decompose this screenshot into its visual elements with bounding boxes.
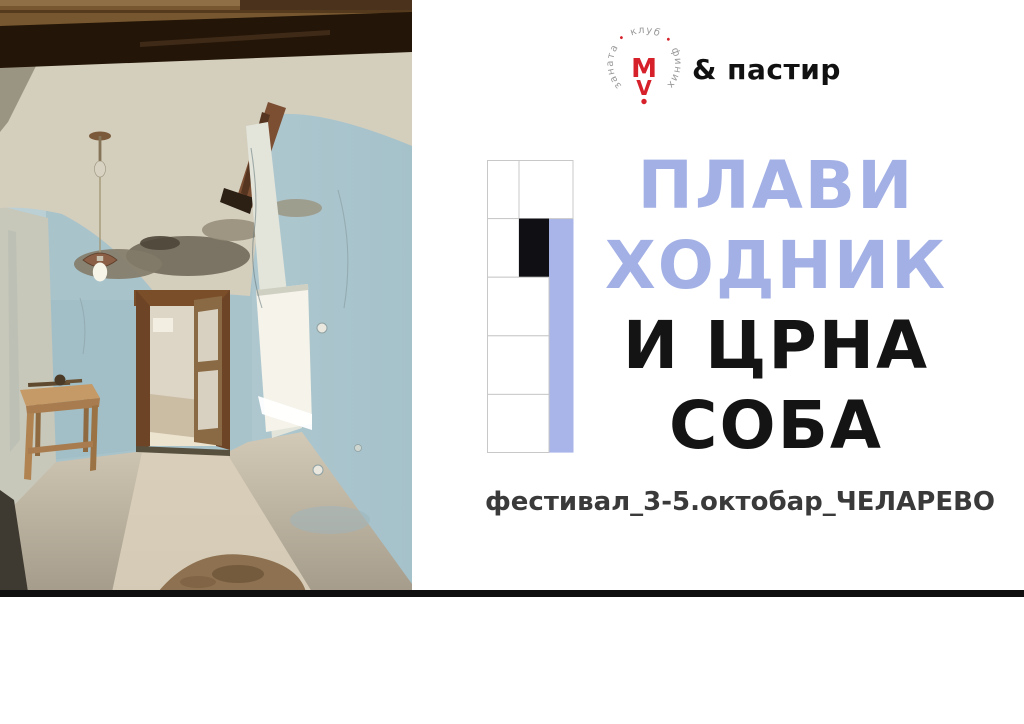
grid-graphic	[487, 160, 574, 453]
club-finih-zanata-logo: заната•клуб•финих M V	[599, 21, 689, 111]
divider-rule	[0, 590, 1024, 597]
monogram-v: V	[636, 76, 652, 100]
title-line-1: ПЛАВИ	[566, 146, 986, 226]
poster-title: ПЛАВИ ХОДНИК И ЦРНА СОБА	[566, 146, 986, 466]
title-line-3: И ЦРНА	[566, 306, 986, 386]
red-dot: •	[616, 32, 628, 45]
arc-word-right: финих	[664, 46, 683, 91]
title-line-2: ХОДНИК	[566, 226, 986, 306]
sponsor-footer: Schweizerische Eidgenossenschaft Confédé…	[0, 597, 1024, 724]
red-dot: •	[662, 34, 675, 47]
wall-outlet	[317, 323, 327, 333]
arc-word-top: клуб	[629, 25, 663, 40]
light-bulb	[93, 263, 107, 282]
title-line-4: СОБА	[566, 386, 986, 466]
room-photo	[0, 0, 412, 592]
arc-word-left: заната	[605, 42, 624, 91]
festival-poster: заната•клуб•финих M V & пастир ПЛАВИ ХОД…	[0, 0, 1024, 724]
festival-subtitle: фестивал_3-5.октобар_ЧЕЛАРЕВО	[485, 487, 995, 517]
partner-label: & пастир	[692, 50, 841, 90]
black-cell	[519, 219, 549, 278]
